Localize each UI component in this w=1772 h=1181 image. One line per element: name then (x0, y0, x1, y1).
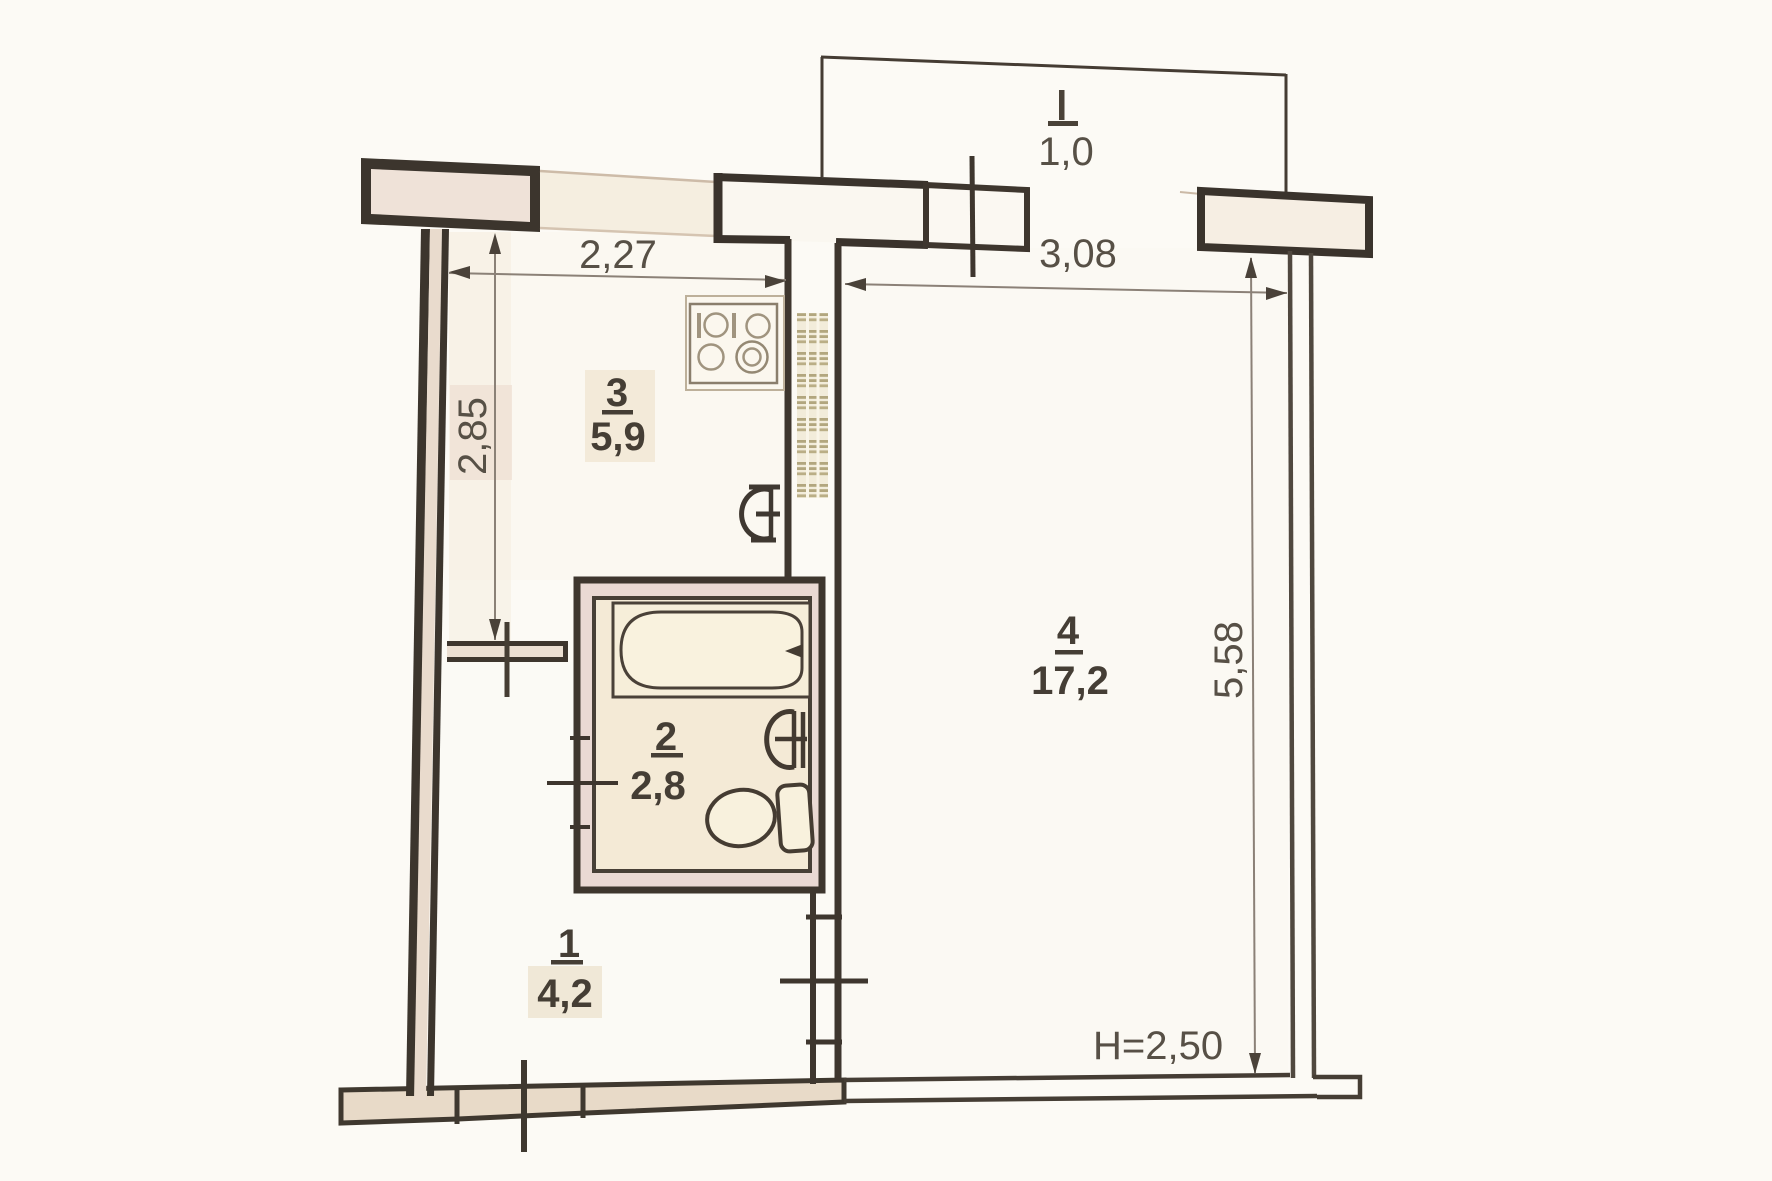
svg-text:4,2: 4,2 (537, 972, 593, 1016)
svg-text:4: 4 (1057, 609, 1080, 653)
svg-text:17,2: 17,2 (1031, 659, 1109, 703)
svg-text:1,0: 1,0 (1038, 130, 1094, 174)
svg-text:2,8: 2,8 (630, 764, 686, 808)
svg-text:5,9: 5,9 (590, 415, 646, 459)
svg-text:2: 2 (655, 715, 677, 759)
svg-text:3,08: 3,08 (1039, 232, 1117, 276)
svg-text:1: 1 (558, 922, 580, 966)
svg-text:3: 3 (606, 371, 628, 415)
svg-text:2,85: 2,85 (451, 397, 495, 475)
svg-text:5,58: 5,58 (1207, 621, 1251, 699)
svg-text:H=2,50: H=2,50 (1093, 1024, 1223, 1068)
svg-text:2,27: 2,27 (579, 233, 657, 277)
